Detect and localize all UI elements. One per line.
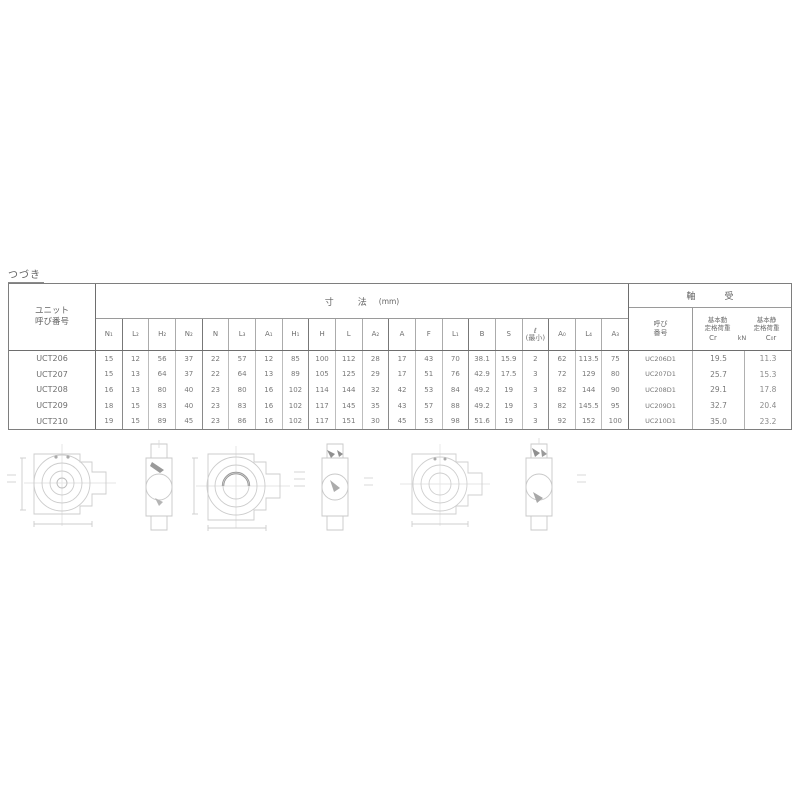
dimension-cell: 16	[256, 382, 283, 398]
unit-number-cell: UCT207	[9, 367, 96, 383]
cor-value-cell: 11.3	[745, 351, 791, 367]
dimension-cell: 16	[96, 382, 123, 398]
dim-column-header: B	[469, 319, 496, 350]
dimension-cell: 15	[96, 367, 123, 383]
dim-column-header: L₃	[229, 319, 256, 350]
take-up-unit-side-view-2	[310, 438, 360, 536]
dimension-cell: 28	[363, 351, 390, 367]
kn-unit-label: kN	[733, 334, 751, 342]
dimension-cell: 32	[363, 382, 390, 398]
dim-column-header: L₂	[123, 319, 150, 350]
dimension-cell: 13	[123, 382, 150, 398]
dim-column-header: N₂	[176, 319, 203, 350]
bearing-number-cell: UC209D1	[629, 398, 693, 414]
dim-column-header: S	[496, 319, 523, 350]
dimension-cell: 151	[336, 413, 363, 429]
dimension-cell: 49.2	[469, 382, 496, 398]
dimension-cell: 18	[96, 398, 123, 414]
dimension-cell: 37	[176, 367, 203, 383]
dimension-cell: 85	[283, 351, 310, 367]
dim-column-header: A₃	[602, 319, 628, 350]
dimension-cell: 3	[523, 413, 550, 429]
dimension-cell: 92	[549, 413, 576, 429]
table-row: UCT20615125637225712851001122817437038.1…	[9, 351, 791, 367]
dimension-cell: 102	[283, 398, 310, 414]
unit-number-cell: UCT206	[9, 351, 96, 367]
dimension-cell: 53	[416, 413, 443, 429]
cr-value-cell: 29.1	[693, 382, 745, 398]
dimension-cell: 90	[602, 382, 628, 398]
dimensions-group: 寸 法 (mm) N₁L₂H₂N₂NL₃A₁H₁HLA₂AFL₁BSℓ (最小)…	[96, 284, 629, 350]
dimension-cell: 70	[443, 351, 470, 367]
table-row: UCT210191589452386161021171513045539851.…	[9, 413, 791, 429]
dimension-cell: 38.1	[469, 351, 496, 367]
dim-column-header: L₁	[443, 319, 470, 350]
dimension-cell: 13	[123, 367, 150, 383]
take-up-unit-front-view-2	[190, 442, 292, 532]
dimension-cell: 129	[576, 367, 603, 383]
dimension-cell: 40	[176, 382, 203, 398]
dimension-cell: 15	[123, 413, 150, 429]
dimension-cell: 3	[523, 367, 550, 383]
dimension-cell: 3	[523, 398, 550, 414]
dimension-cell: 100	[602, 413, 628, 429]
dimension-cells: 15136437226413891051252917517642.917.537…	[96, 367, 629, 383]
dimension-cell: 12	[123, 351, 150, 367]
dimension-cell: 113.5	[576, 351, 603, 367]
dimension-cell: 15	[96, 351, 123, 367]
dimension-cell: 22	[203, 351, 230, 367]
dimension-cell: 83	[229, 398, 256, 414]
dimension-cell: 23	[203, 398, 230, 414]
dim-column-header: H	[309, 319, 336, 350]
dimension-cell: 105	[309, 367, 336, 383]
dimension-cells: 191589452386161021171513045539851.619392…	[96, 413, 629, 429]
dimensions-title: 寸 法 (mm)	[96, 284, 628, 319]
dimension-cell: 57	[416, 398, 443, 414]
dimension-cell: 62	[549, 351, 576, 367]
cor-value-cell: 20.4	[745, 398, 791, 414]
dimension-cell: 15	[123, 398, 150, 414]
dimension-cell: 53	[416, 382, 443, 398]
unit-number-cell: UCT209	[9, 398, 96, 414]
static-rating-header: 基本静 定格荷重	[742, 316, 791, 332]
dimension-cell: 23	[203, 382, 230, 398]
dimension-cell: 12	[256, 351, 283, 367]
dimension-cell: 125	[336, 367, 363, 383]
dimension-cell: 17.5	[496, 367, 523, 383]
dimension-cell: 45	[176, 413, 203, 429]
dimension-cell: 19	[496, 398, 523, 414]
dimension-cell: 64	[149, 367, 176, 383]
dimension-cell: 152	[576, 413, 603, 429]
take-up-unit-side-view-3	[512, 436, 566, 538]
dimensions-unit-label: (mm)	[379, 297, 399, 306]
take-up-unit-side-view-1	[133, 438, 185, 536]
dimension-cell: 45	[389, 413, 416, 429]
dim-column-header: H₁	[283, 319, 310, 350]
dim-column-header: A₂	[363, 319, 390, 350]
dimension-cell: 84	[443, 382, 470, 398]
dimension-cell: 117	[309, 413, 336, 429]
bearing-group: 軸 受 呼び 番号 基本動 定格荷重 基本静	[629, 284, 791, 350]
cor-value-cell: 17.8	[745, 382, 791, 398]
bearing-number-cell: UC208D1	[629, 382, 693, 398]
dim-column-header: N	[203, 319, 230, 350]
bearing-rating-header: 基本動 定格荷重 基本静 定格荷重 Cr kN C₀r	[693, 308, 791, 350]
dimension-cell: 75	[602, 351, 628, 367]
dimension-cell: 49.2	[469, 398, 496, 414]
catalog-page: つづき ユニット 呼び番号 寸 法 (mm) N₁L₂H₂N₂NL₃A₁H₁HL…	[0, 0, 800, 800]
dimension-cell: 117	[309, 398, 336, 414]
dimension-cell: 145.5	[576, 398, 603, 414]
dim-column-header: ℓ (最小)	[523, 319, 550, 350]
dimension-cell: 57	[229, 351, 256, 367]
dimension-marks	[576, 470, 588, 488]
dimension-cell: 64	[229, 367, 256, 383]
dimension-cell: 83	[149, 398, 176, 414]
dimension-cell: 102	[283, 382, 310, 398]
dimension-cell: 98	[443, 413, 470, 429]
dimension-cell: 86	[229, 413, 256, 429]
dimension-cell: 80	[602, 367, 628, 383]
take-up-unit-front-view-1	[18, 440, 118, 530]
dimension-cell: 16	[256, 398, 283, 414]
dimension-cell: 19	[496, 382, 523, 398]
dim-column-header: L₄	[576, 319, 603, 350]
cr-value-cell: 35.0	[693, 413, 745, 429]
dimension-cell: 144	[336, 382, 363, 398]
dimension-cell: 17	[389, 351, 416, 367]
dim-column-header: H₂	[149, 319, 176, 350]
dimension-marks	[6, 470, 18, 490]
dimension-cells: 15125637225712851001122817437038.115.926…	[96, 351, 629, 367]
dimension-cell: 72	[549, 367, 576, 383]
bearing-number-cell: UC207D1	[629, 367, 693, 383]
dimension-cell: 144	[576, 382, 603, 398]
continuation-label: つづき	[8, 266, 44, 283]
unit-header-line2: 呼び番号	[35, 317, 69, 328]
dimension-marks	[363, 474, 375, 490]
dim-column-header: A	[389, 319, 416, 350]
table-header: ユニット 呼び番号 寸 法 (mm) N₁L₂H₂N₂NL₃A₁H₁HLA₂AF…	[9, 284, 791, 351]
unit-number-cell: UCT210	[9, 413, 96, 429]
dimension-cell: 51.6	[469, 413, 496, 429]
dim-column-header: A₁	[256, 319, 283, 350]
table-row: UCT209181583402383161021171453543578849.…	[9, 398, 791, 414]
dimension-cell: 51	[416, 367, 443, 383]
bearing-number-cell: UC210D1	[629, 413, 693, 429]
dimension-cell: 100	[309, 351, 336, 367]
dimension-cell: 19	[96, 413, 123, 429]
dimension-column-headers: N₁L₂H₂N₂NL₃A₁H₁HLA₂AFL₁BSℓ (最小)A₀L₄A₃	[96, 319, 628, 350]
bearing-number-cell: UC206D1	[629, 351, 693, 367]
dimension-cell: 23	[203, 413, 230, 429]
dimension-cell: 15.9	[496, 351, 523, 367]
dimension-table: ユニット 呼び番号 寸 法 (mm) N₁L₂H₂N₂NL₃A₁H₁HLA₂AF…	[8, 283, 792, 430]
dimension-cell: 42	[389, 382, 416, 398]
dim-column-header: N₁	[96, 319, 123, 350]
unit-number-column-header: ユニット 呼び番号	[9, 284, 96, 350]
dimension-cell: 19	[496, 413, 523, 429]
bearing-title: 軸 受	[629, 284, 791, 308]
dimension-cell: 95	[602, 398, 628, 414]
unit-header-line1: ユニット	[35, 306, 69, 317]
cr-value-cell: 25.7	[693, 367, 745, 383]
unit-number-cell: UCT208	[9, 382, 96, 398]
cr-value-cell: 19.5	[693, 351, 745, 367]
dimension-cell: 40	[176, 398, 203, 414]
cr-value-cell: 32.7	[693, 398, 745, 414]
table-row: UCT208161380402380161021141443242538449.…	[9, 382, 791, 398]
dimension-cell: 30	[363, 413, 390, 429]
dimension-cell: 112	[336, 351, 363, 367]
dimension-cell: 3	[523, 382, 550, 398]
dimension-cell: 102	[283, 413, 310, 429]
dimension-cell: 88	[443, 398, 470, 414]
dimension-cell: 82	[549, 382, 576, 398]
dimension-cell: 89	[149, 413, 176, 429]
dimension-cell: 76	[443, 367, 470, 383]
dimension-cells: 181583402383161021171453543578849.219382…	[96, 398, 629, 414]
dim-column-header: A₀	[549, 319, 576, 350]
dimension-cell: 17	[389, 367, 416, 383]
table-body: UCT20615125637225712851001122817437038.1…	[9, 351, 791, 429]
cor-value-cell: 23.2	[745, 413, 791, 429]
dimension-cell: 114	[309, 382, 336, 398]
bearing-number-header: 呼び 番号	[629, 308, 693, 350]
dimension-cell: 2	[523, 351, 550, 367]
dimension-cell: 89	[283, 367, 310, 383]
dimension-cell: 29	[363, 367, 390, 383]
cor-symbol: C₀r	[751, 334, 791, 342]
dim-column-header: F	[416, 319, 443, 350]
dimension-cell: 80	[149, 382, 176, 398]
dimension-cell: 35	[363, 398, 390, 414]
dimension-cell: 42.9	[469, 367, 496, 383]
dimension-cells: 161380402380161021141443242538449.219382…	[96, 382, 629, 398]
cr-symbol: Cr	[693, 334, 733, 342]
cor-value-cell: 15.3	[745, 367, 791, 383]
dim-column-header: L	[336, 319, 363, 350]
dimension-cell: 56	[149, 351, 176, 367]
table-row: UCT20715136437226413891051252917517642.9…	[9, 367, 791, 383]
dimension-cell: 145	[336, 398, 363, 414]
dimension-cell: 16	[256, 413, 283, 429]
dynamic-rating-header: 基本動 定格荷重	[693, 316, 742, 332]
dimension-cell: 13	[256, 367, 283, 383]
dimension-marks	[293, 468, 307, 490]
dimension-cell: 37	[176, 351, 203, 367]
bearing-subheaders: 呼び 番号 基本動 定格荷重 基本静 定格荷重	[629, 308, 791, 350]
dimension-cell: 22	[203, 367, 230, 383]
dimension-cell: 82	[549, 398, 576, 414]
dimension-cell: 43	[416, 351, 443, 367]
take-up-unit-front-view-3	[396, 440, 492, 530]
dimension-cell: 43	[389, 398, 416, 414]
dimension-cell: 80	[229, 382, 256, 398]
